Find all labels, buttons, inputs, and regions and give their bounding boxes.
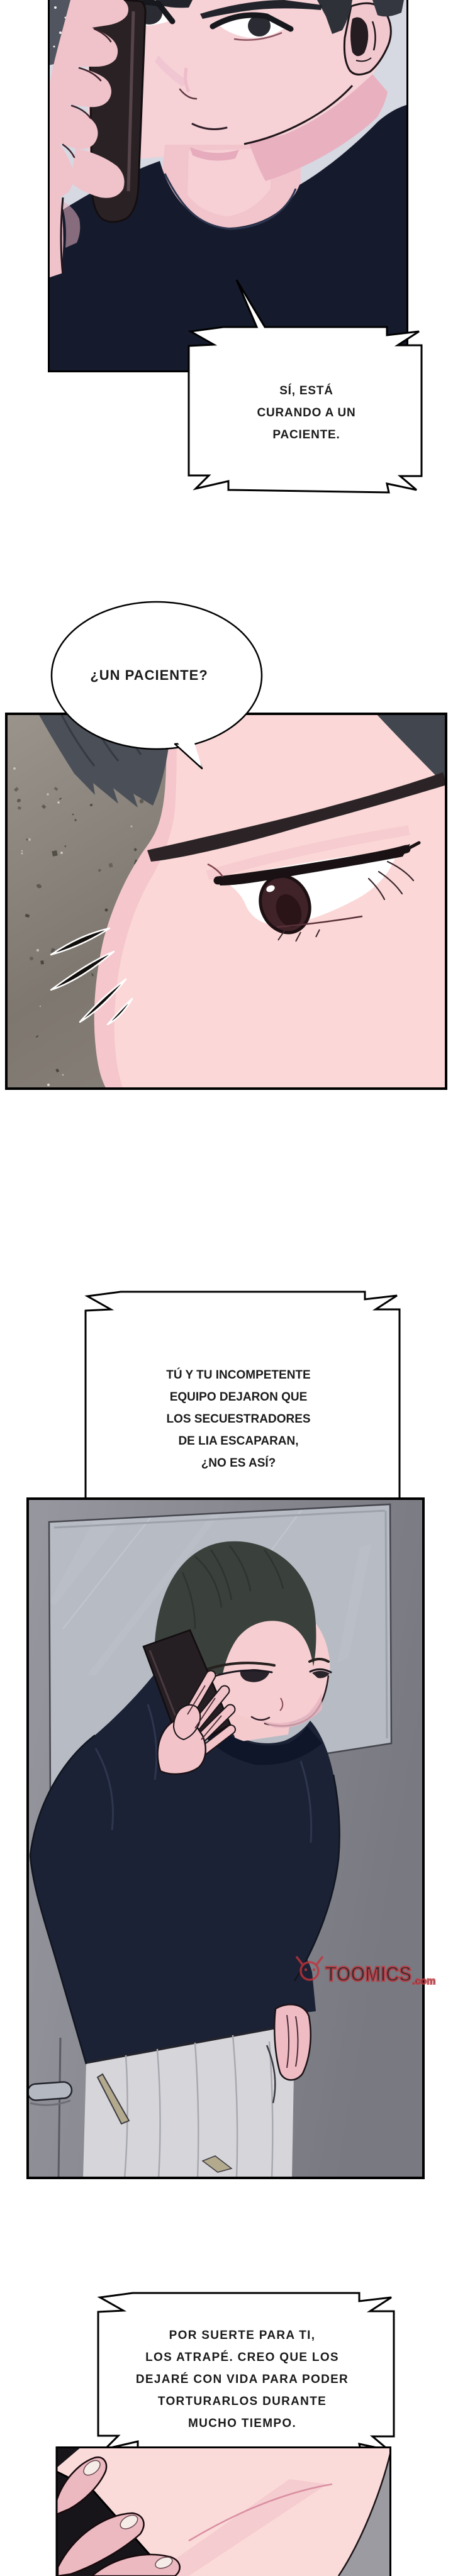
svg-text:¿NO ES ASÍ?: ¿NO ES ASÍ? (201, 1456, 276, 1470)
svg-text:POR SUERTE PARA TI,: POR SUERTE PARA TI, (169, 2329, 316, 2342)
svg-text:.com: .com (412, 1976, 435, 1987)
svg-text:TORTURARLOS DURANTE: TORTURARLOS DURANTE (158, 2395, 327, 2408)
svg-text:SÍ, ESTÁ: SÍ, ESTÁ (279, 384, 333, 397)
svg-text:CURANDO A UN: CURANDO A UN (257, 406, 355, 419)
svg-text:DE LIA ESCAPARAN,: DE LIA ESCAPARAN, (178, 1435, 298, 1448)
svg-text:PACIENTE.: PACIENTE. (272, 428, 340, 441)
svg-text:TÚ Y TU INCOMPETENTE: TÚ Y TU INCOMPETENTE (166, 1368, 310, 1382)
svg-text:LOS ATRAPÉ. CREO QUE LOS: LOS ATRAPÉ. CREO QUE LOS (145, 2350, 339, 2364)
svg-text:DEJARÉ CON VIDA PARA PODER: DEJARÉ CON VIDA PARA PODER (136, 2372, 349, 2386)
svg-text:EQUIPO DEJARON QUE: EQUIPO DEJARON QUE (170, 1391, 308, 1404)
svg-text:¿UN PACIENTE?: ¿UN PACIENTE? (90, 667, 208, 683)
svg-text:MUCHO TIEMPO.: MUCHO TIEMPO. (188, 2417, 296, 2430)
svg-text:LOS SECUESTRADORES: LOS SECUESTRADORES (166, 1413, 310, 1426)
svg-text:TOOMICS: TOOMICS (325, 1962, 411, 1985)
